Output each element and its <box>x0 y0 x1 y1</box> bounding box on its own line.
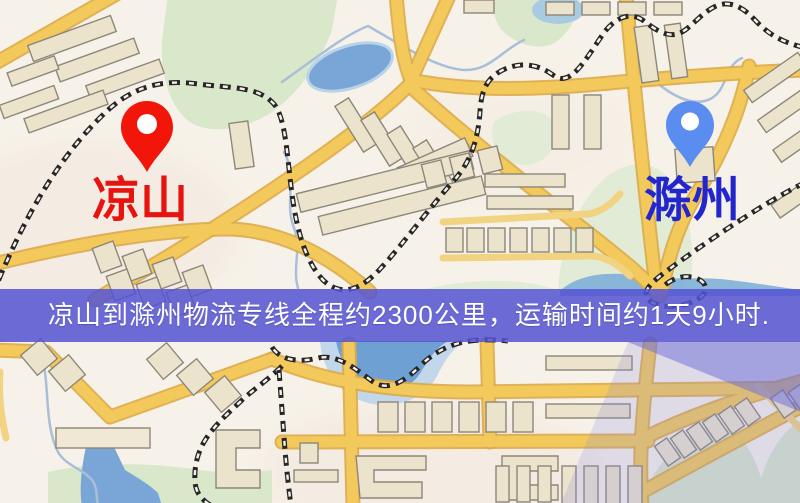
destination-label: 滁州 <box>644 174 740 227</box>
origin-pin-hole <box>137 114 157 134</box>
route-banner-bg <box>0 289 800 342</box>
map-view[interactable]: 凉山 滁州 凉山到滁州物流专线全程约2300公里，运输时间约1天9小时. <box>0 0 800 503</box>
destination-pin-hole <box>681 113 699 131</box>
origin-label: 凉山 <box>92 174 188 227</box>
